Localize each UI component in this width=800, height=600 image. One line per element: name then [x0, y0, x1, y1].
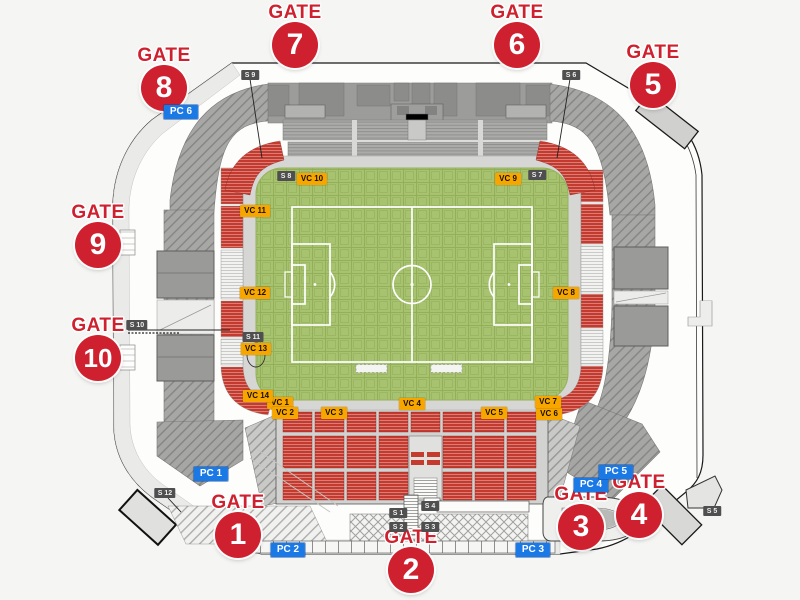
- gate-6-word: GATE: [490, 2, 543, 24]
- gate-8-word: GATE: [137, 45, 190, 67]
- service-point-label-s-1[interactable]: S 1: [389, 508, 407, 518]
- service-point-label-s-3[interactable]: S 3: [421, 522, 439, 532]
- section-label-vc-2[interactable]: VC 2: [272, 407, 298, 419]
- gate-9-circle[interactable]: 9: [75, 222, 121, 268]
- gate-1-circle[interactable]: 1: [215, 512, 261, 558]
- entrance-label-pc-4[interactable]: PC 4: [574, 478, 608, 492]
- entrance-label-pc-2[interactable]: PC 2: [271, 543, 305, 557]
- entrance-label-pc-5[interactable]: PC 5: [599, 465, 633, 479]
- section-label-vc-3[interactable]: VC 3: [321, 407, 347, 419]
- entrance-label-pc-6[interactable]: PC 6: [164, 105, 198, 119]
- service-point-label-s-6[interactable]: S 6: [562, 70, 580, 80]
- section-label-vc-11[interactable]: VC 11: [240, 205, 270, 217]
- service-point-label-s-12[interactable]: S 12: [154, 488, 175, 498]
- gate-2-circle[interactable]: 2: [388, 547, 434, 593]
- section-label-vc-8[interactable]: VC 8: [553, 287, 579, 299]
- service-point-label-s-4[interactable]: S 4: [421, 501, 439, 511]
- service-point-label-s-11[interactable]: S 11: [242, 332, 263, 342]
- gate-6-circle[interactable]: 6: [494, 22, 540, 68]
- service-point-label-s-2[interactable]: S 2: [389, 522, 407, 532]
- section-label-vc-9[interactable]: VC 9: [495, 173, 521, 185]
- section-label-vc-12[interactable]: VC 12: [240, 287, 270, 299]
- entrance-label-pc-3[interactable]: PC 3: [516, 543, 550, 557]
- gate-10-circle[interactable]: 10: [75, 335, 121, 381]
- section-label-vc-14[interactable]: VC 14: [243, 390, 273, 402]
- section-label-vc-10[interactable]: VC 10: [297, 173, 327, 185]
- section-label-vc-5[interactable]: VC 5: [481, 407, 507, 419]
- gate-1-word: GATE: [211, 492, 264, 514]
- service-point-label-s-9[interactable]: S 9: [241, 70, 259, 80]
- entrance-label-pc-1[interactable]: PC 1: [194, 467, 228, 481]
- stadium-map: GATE 7 GATE 6 GATE 5 GATE 8 GATE 9 GATE …: [0, 0, 800, 600]
- section-label-vc-7[interactable]: VC 7: [535, 396, 561, 408]
- gate-3-circle[interactable]: 3: [558, 504, 604, 550]
- gate-10-word: GATE: [71, 315, 124, 337]
- gate-7-word: GATE: [268, 2, 321, 24]
- label-overlay: GATE 7 GATE 6 GATE 5 GATE 8 GATE 9 GATE …: [0, 0, 800, 600]
- gate-4-circle[interactable]: 4: [616, 492, 662, 538]
- gate-5-word: GATE: [626, 42, 679, 64]
- service-point-label-s-7[interactable]: S 7: [528, 170, 546, 180]
- service-point-label-s-5[interactable]: S 5: [703, 506, 721, 516]
- gate-7-circle[interactable]: 7: [272, 22, 318, 68]
- section-label-vc-13[interactable]: VC 13: [241, 343, 271, 355]
- gate-9-word: GATE: [71, 202, 124, 224]
- service-point-label-s-10[interactable]: S 10: [126, 320, 147, 330]
- section-label-vc-4[interactable]: VC 4: [399, 398, 425, 410]
- service-point-label-s-8[interactable]: S 8: [277, 171, 295, 181]
- gate-5-circle[interactable]: 5: [630, 62, 676, 108]
- section-label-vc-6[interactable]: VC 6: [536, 408, 562, 420]
